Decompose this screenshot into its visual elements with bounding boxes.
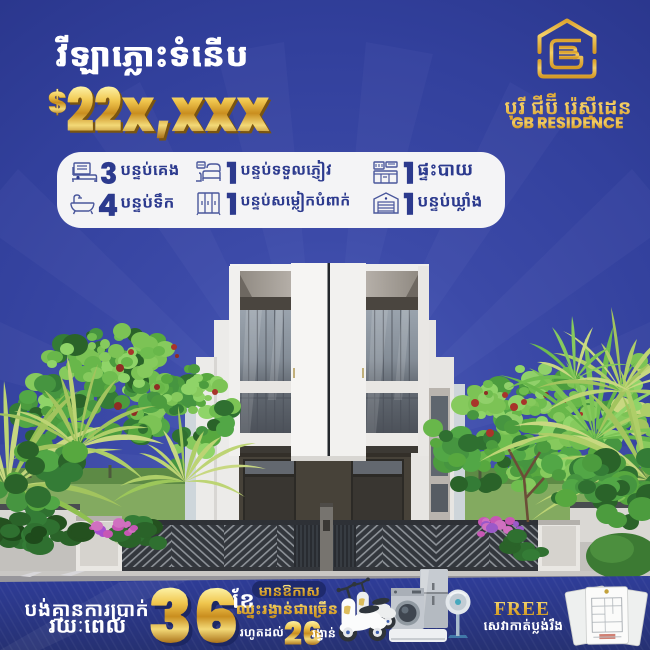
svg-text:FREE: FREE xyxy=(494,599,550,620)
